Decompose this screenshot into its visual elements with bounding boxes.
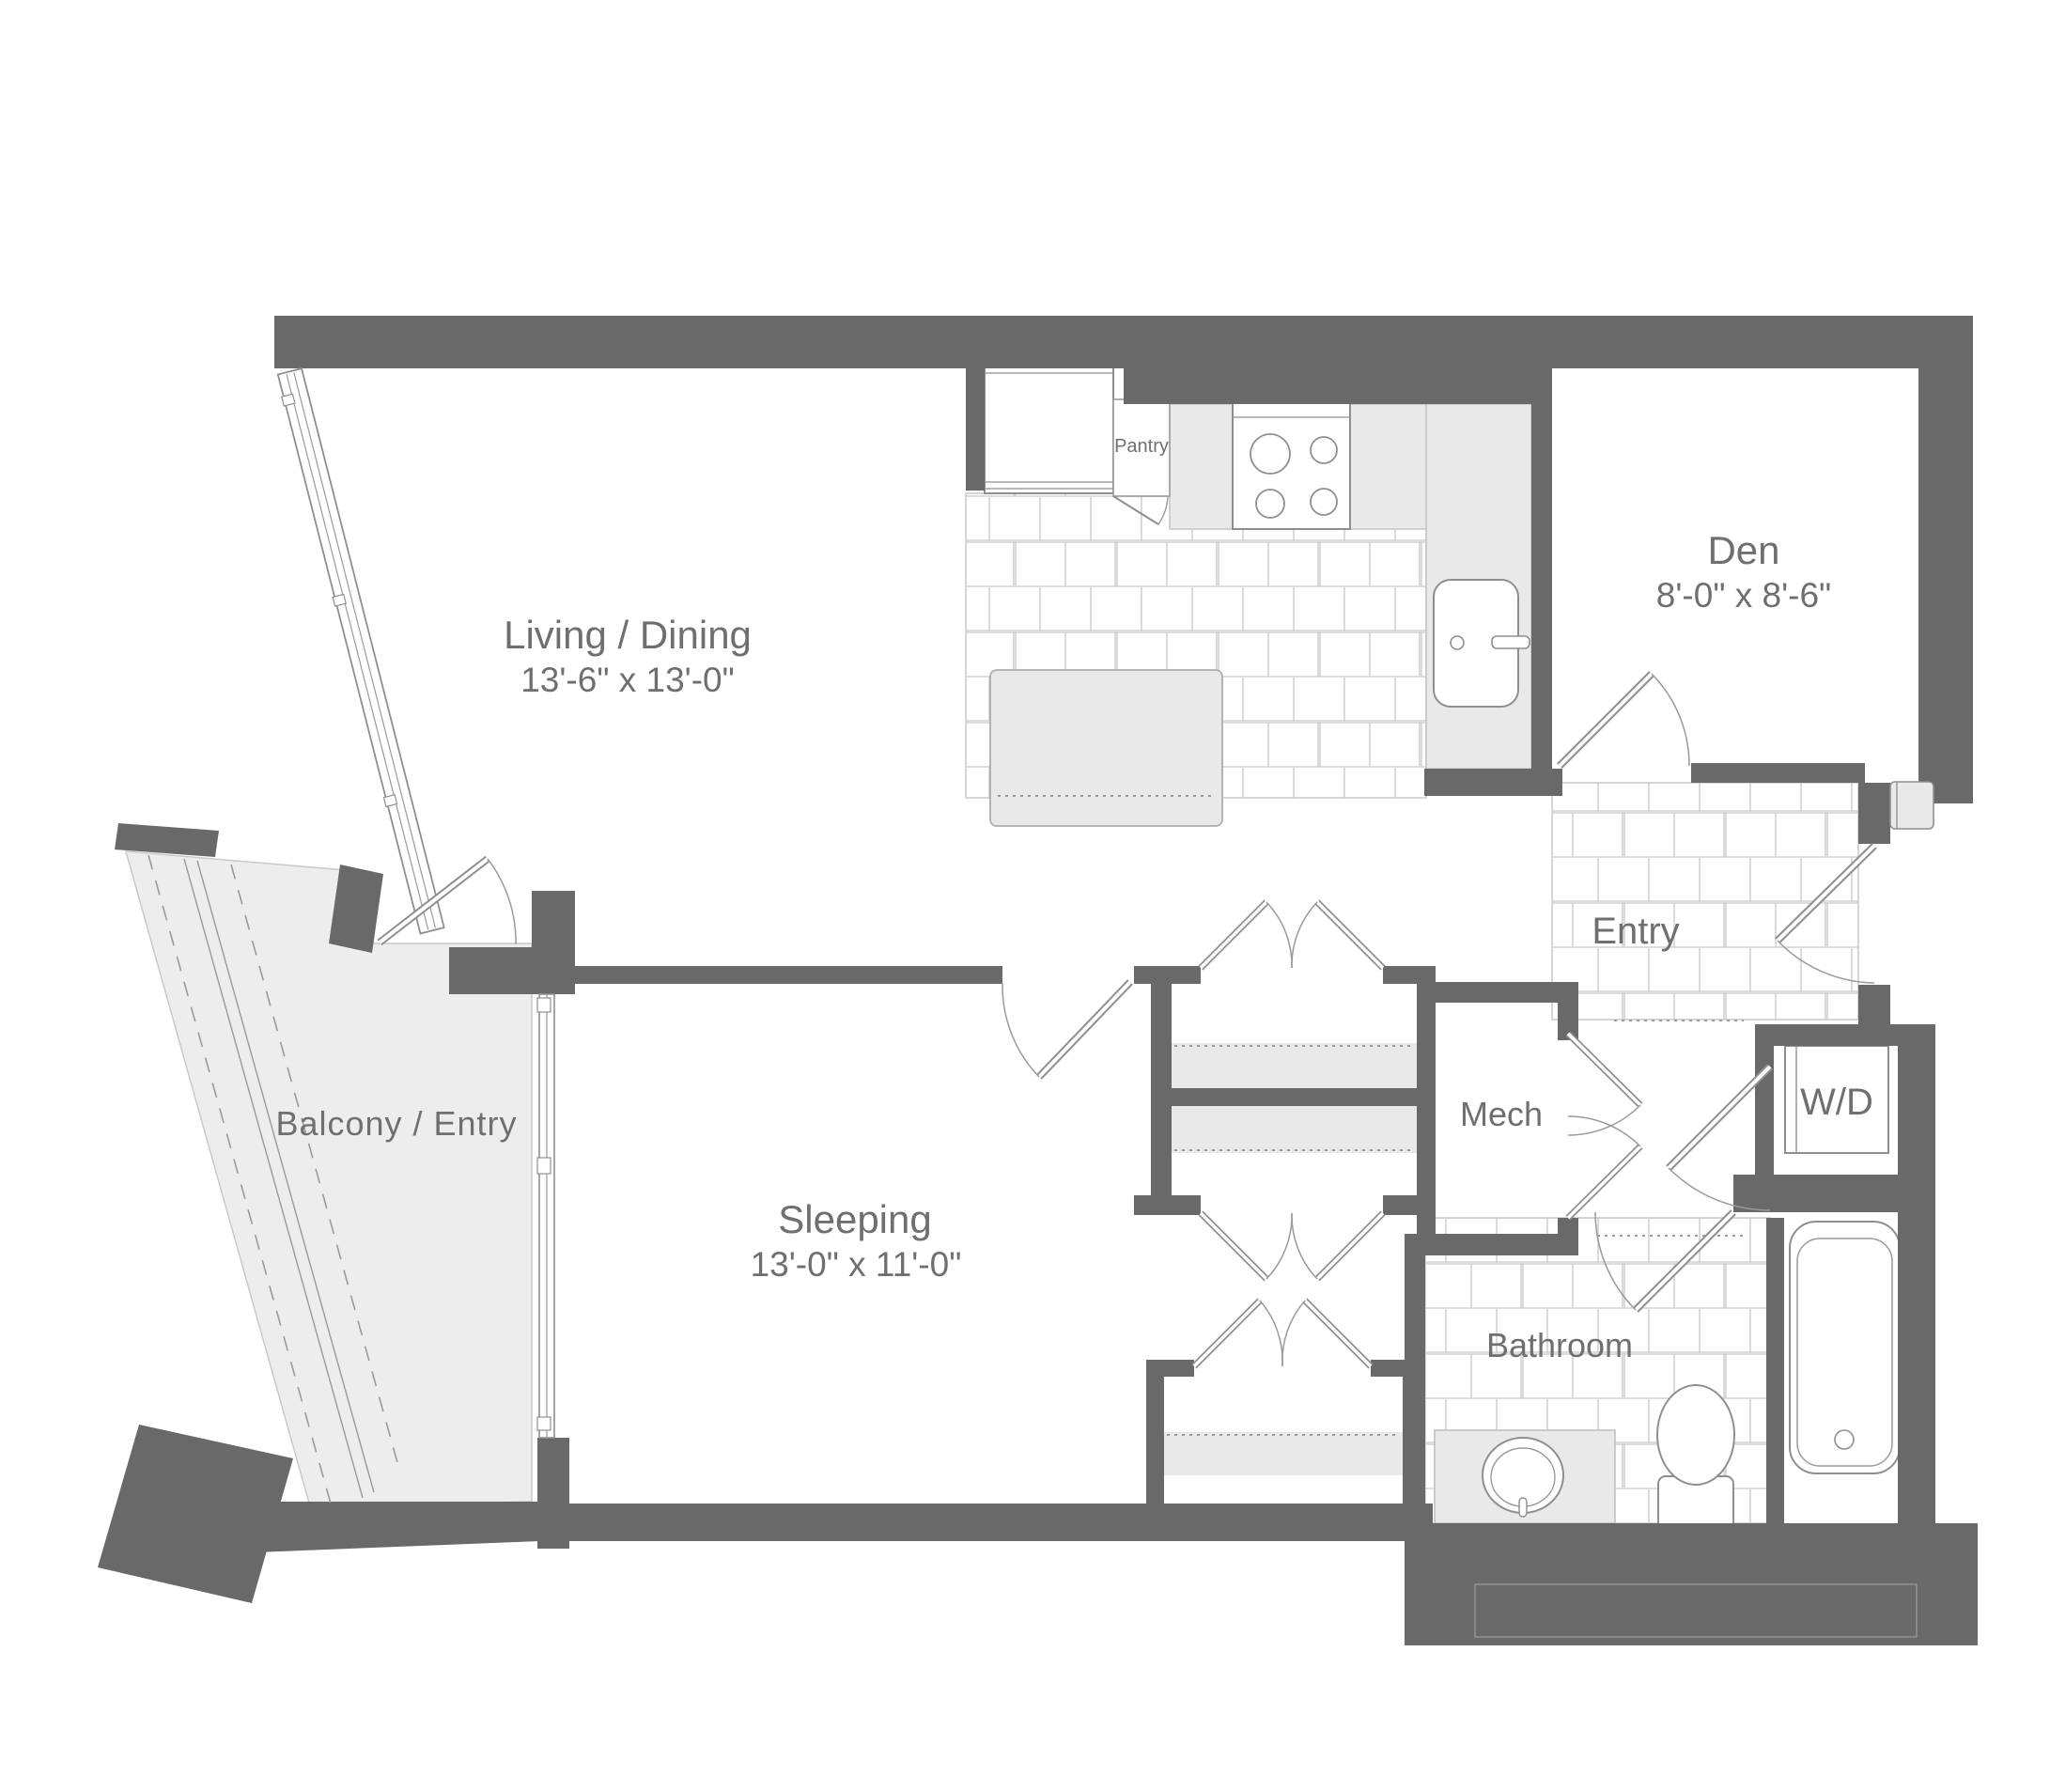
floor-plan: Pantry bbox=[0, 0, 2050, 1792]
wall-closet-left bbox=[1151, 966, 1172, 1215]
den-door bbox=[1560, 674, 1689, 766]
wall-kitchen-south bbox=[1424, 769, 1562, 796]
balcony-sliding-door bbox=[537, 994, 554, 1438]
door-handle-icon bbox=[537, 1158, 551, 1174]
burner-icon bbox=[1311, 437, 1337, 463]
window-mullion-icon bbox=[383, 795, 396, 807]
wall-tub-divider bbox=[1766, 1218, 1784, 1523]
wall-closet-stub bbox=[1172, 966, 1201, 984]
closet-shelf bbox=[1164, 1432, 1403, 1475]
bathtub bbox=[1790, 1222, 1900, 1473]
toilet bbox=[1657, 1385, 1734, 1533]
room-dims-sleeping: 13'-0" x 11'-0" bbox=[751, 1245, 962, 1284]
room-label-mech: Mech bbox=[1460, 1095, 1543, 1133]
door-handle-icon bbox=[537, 998, 551, 1012]
vanity-sink bbox=[1435, 1430, 1615, 1523]
floor-plan-page: Pantry bbox=[0, 0, 2050, 1792]
wall-entry-right-upper bbox=[1858, 783, 1890, 844]
room-entry-floor bbox=[1552, 783, 1858, 1020]
wall-kitchen-top bbox=[1124, 368, 1552, 404]
fridge bbox=[985, 365, 1113, 493]
faucet-icon bbox=[1519, 1498, 1527, 1517]
wall-fridge-stub bbox=[966, 365, 985, 491]
wall-den-right bbox=[1918, 316, 1973, 803]
wall-closet-stub bbox=[1383, 1195, 1436, 1215]
room-label-entry: Entry bbox=[1592, 911, 1679, 952]
stove bbox=[1233, 402, 1350, 529]
mech-double-doors bbox=[1568, 1034, 1640, 1218]
wall-mech-top bbox=[1417, 982, 1578, 1003]
wall-south bbox=[536, 1504, 1433, 1541]
door-handle-icon bbox=[537, 1417, 551, 1430]
wall-den-bottom bbox=[1691, 763, 1865, 783]
kitchen-counter bbox=[1350, 404, 1426, 529]
wall-top bbox=[274, 316, 1973, 368]
wall-balcony-bottom bbox=[246, 1502, 540, 1552]
room-label-living: Living / Dining bbox=[504, 613, 752, 657]
wall-sleeping-top bbox=[575, 966, 1002, 984]
window-mullion-icon bbox=[333, 595, 346, 607]
faucet-icon bbox=[1451, 636, 1464, 649]
kitchen-counter bbox=[1170, 404, 1233, 529]
wall-closet-stub bbox=[1383, 966, 1417, 984]
wall-closet2-stub bbox=[1146, 1360, 1194, 1377]
entry-pad bbox=[1890, 782, 1934, 829]
kitchen-island bbox=[990, 670, 1222, 826]
wall-laundry-bottom bbox=[1733, 1175, 1935, 1212]
closet-shelf bbox=[1172, 1043, 1417, 1088]
wall-balcony-block-lower bbox=[537, 1438, 569, 1549]
burner-icon bbox=[1256, 490, 1284, 518]
burner-icon bbox=[1250, 434, 1290, 474]
pantry-label: Pantry bbox=[1114, 436, 1169, 457]
room-label-laundry: W/D bbox=[1800, 1082, 1873, 1123]
wall-kitchen-den bbox=[1531, 368, 1552, 783]
closet-shelf bbox=[1172, 1106, 1417, 1153]
wall-balcony-block-upper bbox=[532, 891, 575, 994]
kitchen-sink bbox=[1434, 580, 1530, 707]
room-label-bathroom: Bathroom bbox=[1486, 1326, 1633, 1364]
wall-laundry-left bbox=[1755, 1024, 1774, 1175]
room-label-balcony: Balcony / Entry bbox=[275, 1104, 517, 1143]
wall-right-south bbox=[1898, 1024, 1935, 1527]
drain-icon bbox=[1835, 1430, 1854, 1449]
faucet-handle-icon bbox=[1492, 636, 1530, 648]
room-label-sleeping: Sleeping bbox=[778, 1197, 931, 1241]
wall-closet-middle bbox=[1172, 1088, 1417, 1106]
room-dims-living: 13'-6" x 13'-0" bbox=[520, 661, 735, 699]
room-dims-den: 8'-0" x 8'-6" bbox=[1656, 576, 1831, 615]
wall-closet2-right bbox=[1403, 1360, 1421, 1504]
wall-entry-right-lower bbox=[1858, 985, 1890, 1024]
window-mullion-icon bbox=[282, 394, 295, 406]
wall-mech-bottom bbox=[1405, 1234, 1578, 1255]
wall-closet2-stub bbox=[1371, 1360, 1421, 1377]
room-label-den: Den bbox=[1707, 528, 1779, 572]
wall-closet2-left bbox=[1146, 1360, 1164, 1504]
burner-icon bbox=[1311, 489, 1337, 515]
wall-closet-stub bbox=[1134, 1195, 1201, 1215]
